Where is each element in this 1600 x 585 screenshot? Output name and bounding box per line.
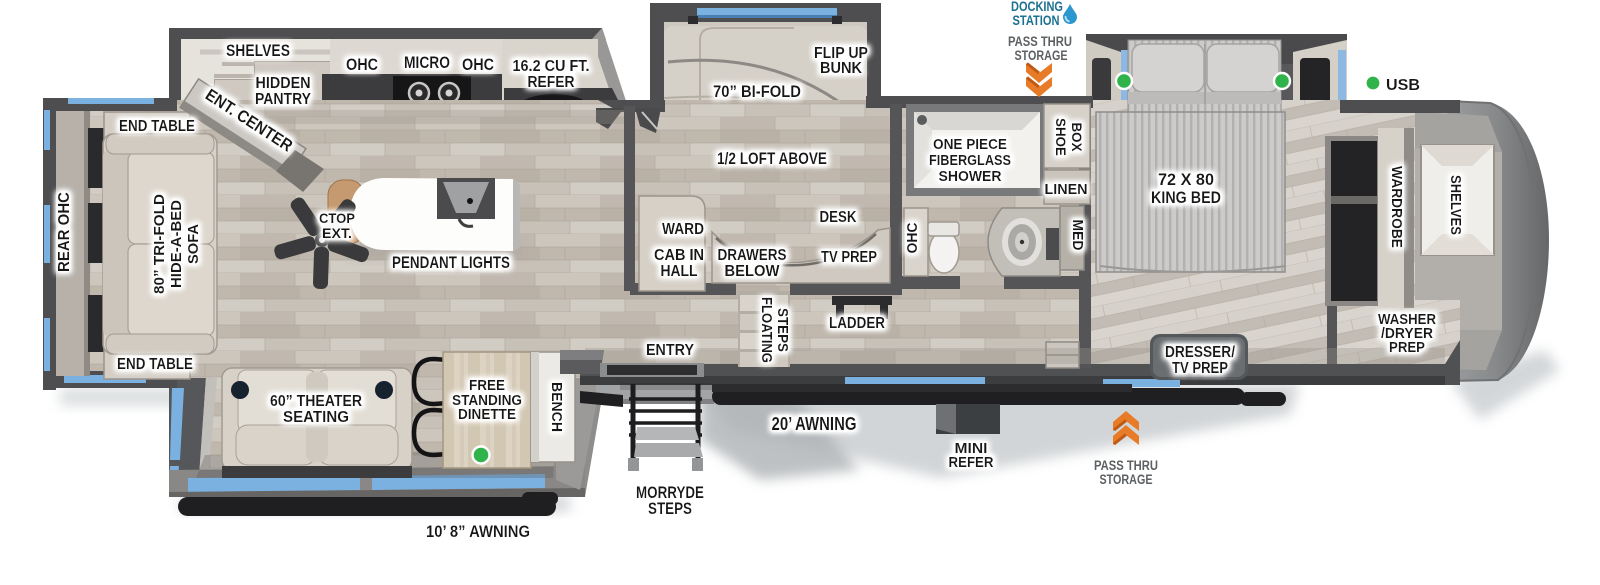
svg-text:MICRO: MICRO [404, 54, 450, 72]
svg-text:HIDE-A-BED: HIDE-A-BED [168, 200, 185, 288]
svg-text:FLOATING: FLOATING [758, 297, 775, 363]
svg-text:PENDANT LIGHTS: PENDANT LIGHTS [392, 253, 510, 272]
svg-text:70” BI-FOLD: 70” BI-FOLD [713, 82, 801, 101]
svg-text:CTOP: CTOP [319, 210, 355, 226]
svg-text:SEATING: SEATING [283, 409, 349, 426]
svg-text:HALL: HALL [661, 263, 698, 280]
svg-text:DESK: DESK [820, 209, 857, 226]
svg-text:REAR OHC: REAR OHC [56, 192, 73, 272]
svg-text:USB: USB [1386, 77, 1420, 94]
svg-text:OHC: OHC [346, 56, 378, 74]
svg-text:TV PREP: TV PREP [1172, 360, 1228, 377]
svg-text:PASS THRU: PASS THRU [1008, 34, 1072, 49]
svg-text:SHELVES: SHELVES [226, 41, 290, 60]
svg-text:16.2 CU FT.: 16.2 CU FT. [513, 58, 590, 75]
svg-text:TV PREP: TV PREP [821, 249, 877, 266]
svg-text:DINETTE: DINETTE [458, 407, 516, 423]
svg-text:BELOW: BELOW [725, 263, 781, 280]
svg-text:FREE: FREE [469, 378, 505, 394]
svg-text:STEPS: STEPS [774, 308, 791, 352]
svg-text:OHC: OHC [462, 56, 494, 74]
svg-text:ENTRY: ENTRY [646, 342, 694, 359]
svg-text:END TABLE: END TABLE [117, 356, 193, 373]
svg-text:EXT.: EXT. [322, 225, 352, 241]
svg-text:SHELVES: SHELVES [1447, 175, 1464, 235]
svg-text:80” TRI-FOLD: 80” TRI-FOLD [151, 194, 168, 294]
svg-text:STEPS: STEPS [648, 500, 692, 518]
svg-text:ONE PIECE: ONE PIECE [933, 136, 1007, 153]
svg-text:PASS THRU: PASS THRU [1094, 458, 1158, 473]
svg-text:10’ 8” AWNING: 10’ 8” AWNING [426, 522, 530, 541]
svg-text:SOFA: SOFA [185, 224, 202, 264]
svg-text:LADDER: LADDER [829, 315, 885, 332]
svg-text:MED: MED [1069, 220, 1086, 251]
svg-text:CAB IN: CAB IN [654, 247, 704, 264]
svg-text:BENCH: BENCH [548, 382, 564, 432]
svg-text:STORAGE: STORAGE [1100, 472, 1153, 487]
svg-text:END TABLE: END TABLE [119, 118, 195, 135]
svg-text:BOX: BOX [1069, 123, 1085, 153]
svg-text:SHOE: SHOE [1053, 118, 1069, 156]
svg-text:STORAGE: STORAGE [1015, 48, 1068, 63]
svg-text:OHC: OHC [904, 222, 921, 253]
svg-text:DRAWERS: DRAWERS [718, 247, 787, 264]
svg-text:PANTRY: PANTRY [255, 91, 311, 108]
svg-text:72 X 80: 72 X 80 [1158, 171, 1214, 189]
svg-text:WARDROBE: WARDROBE [1388, 166, 1405, 248]
svg-text:DRESSER/: DRESSER/ [1165, 344, 1235, 361]
svg-text:KING BED: KING BED [1151, 189, 1221, 207]
svg-text:SHOWER: SHOWER [939, 168, 1002, 185]
svg-text:BUNK: BUNK [820, 60, 862, 77]
svg-text:DOCKING: DOCKING [1011, 0, 1063, 14]
svg-text:FIBERGLASS: FIBERGLASS [929, 152, 1011, 169]
svg-text:LINEN: LINEN [1045, 181, 1088, 198]
svg-text:60” THEATER: 60” THEATER [270, 393, 362, 410]
svg-text:REFER: REFER [528, 74, 575, 91]
svg-text:PREP: PREP [1389, 339, 1425, 356]
svg-text:STATION: STATION [1013, 13, 1060, 28]
svg-text:20’ AWNING: 20’ AWNING [772, 414, 857, 434]
svg-text:WARD: WARD [662, 221, 704, 238]
svg-text:1/2 LOFT ABOVE: 1/2 LOFT ABOVE [717, 149, 827, 168]
svg-text:HIDDEN: HIDDEN [256, 75, 311, 92]
svg-text:REFER: REFER [949, 454, 994, 471]
